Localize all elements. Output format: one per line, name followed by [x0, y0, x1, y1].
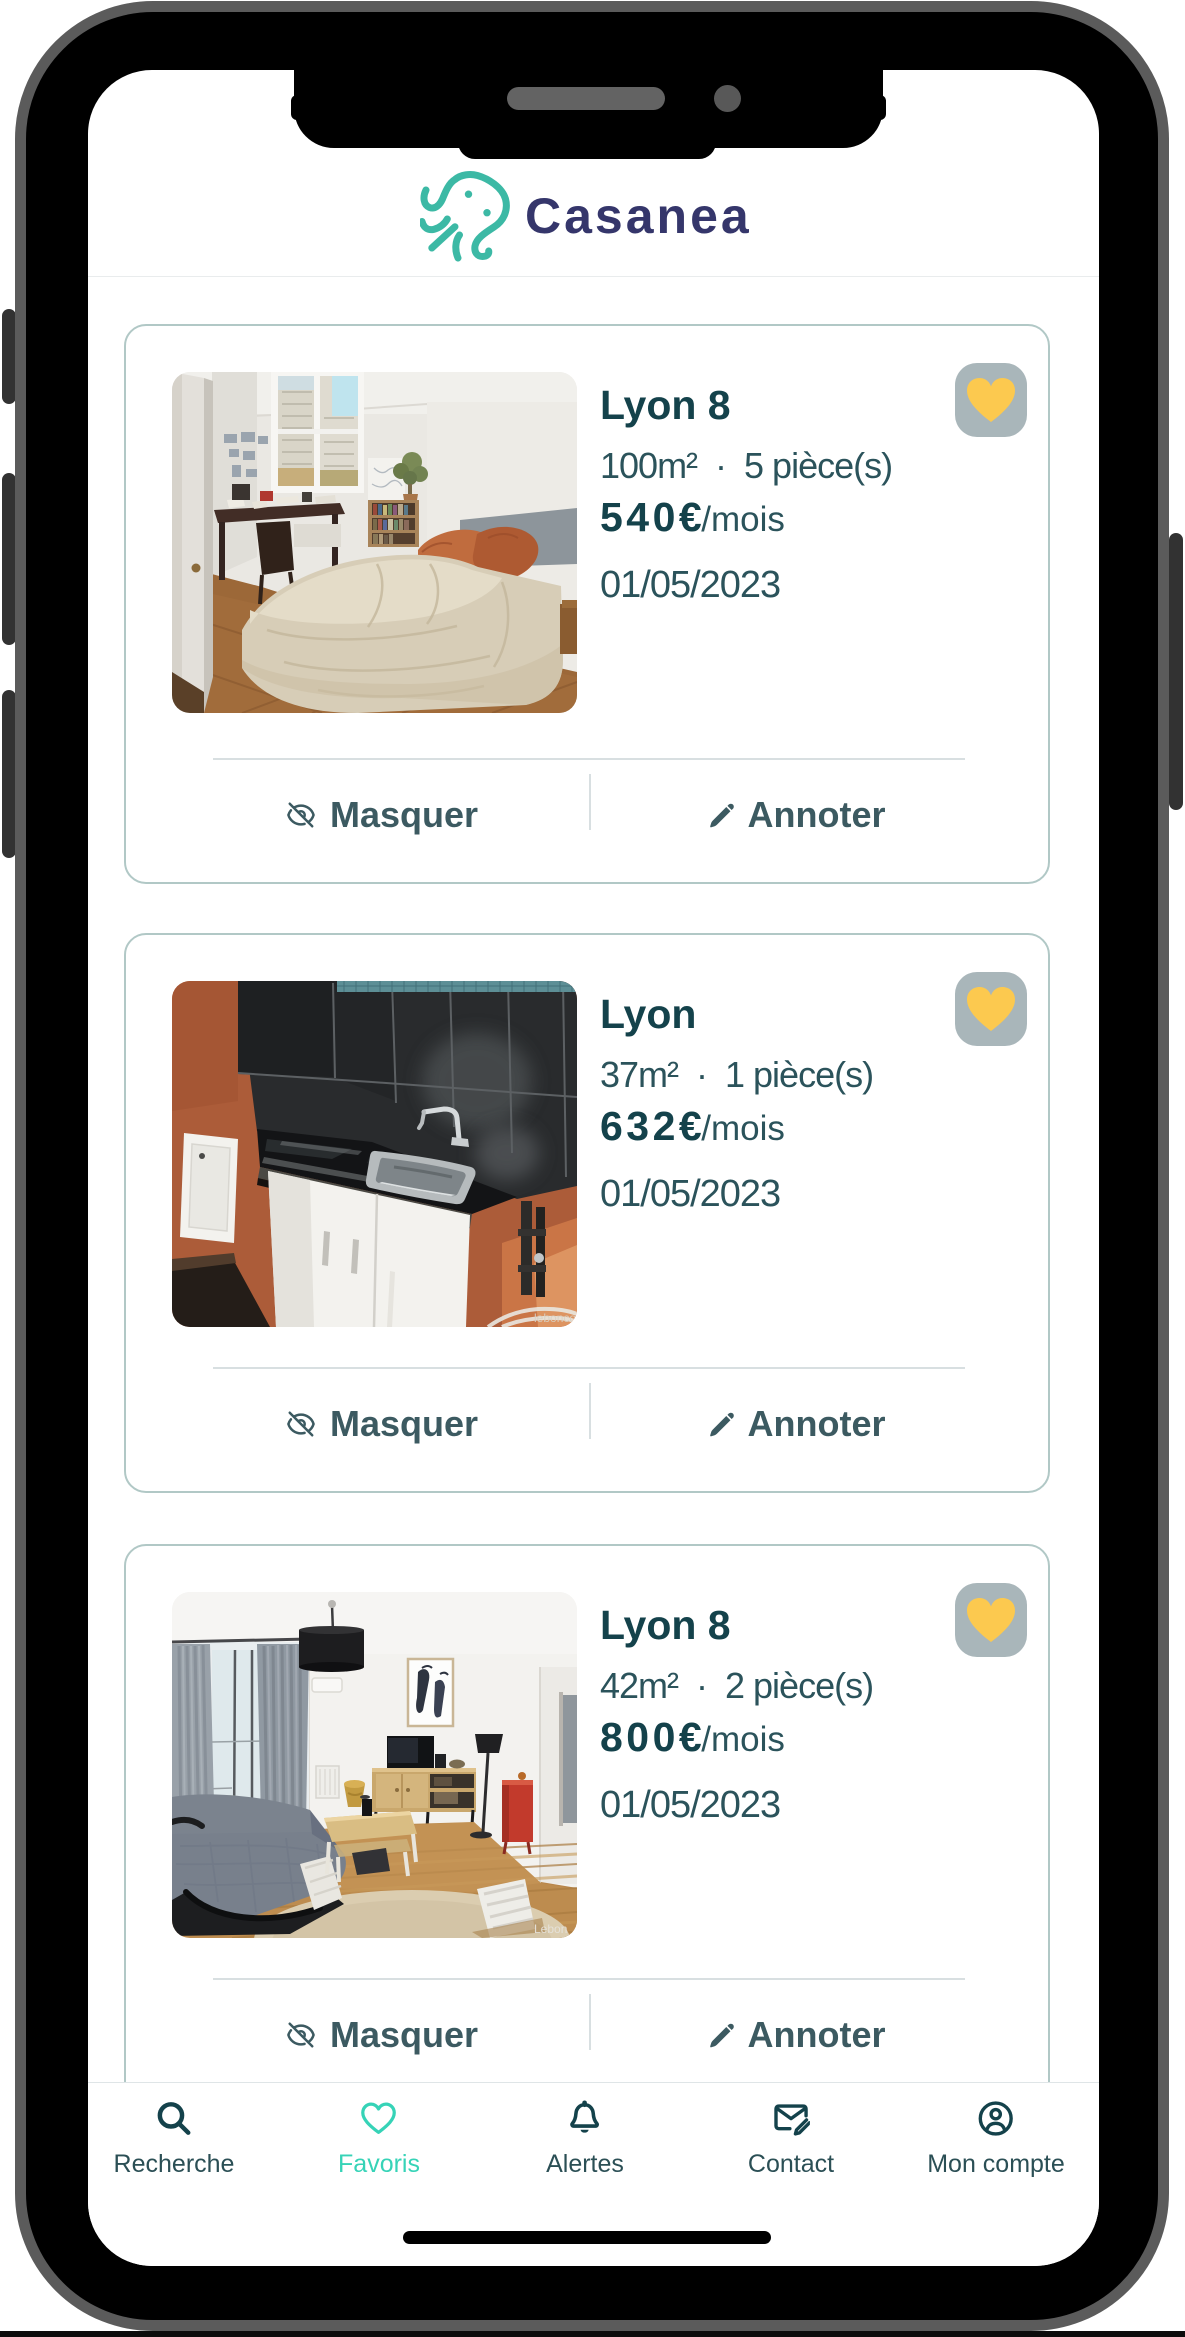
svg-text:leboncoin: leboncoin — [534, 1311, 577, 1325]
svg-text:Lebon: Lebon — [534, 1922, 567, 1936]
